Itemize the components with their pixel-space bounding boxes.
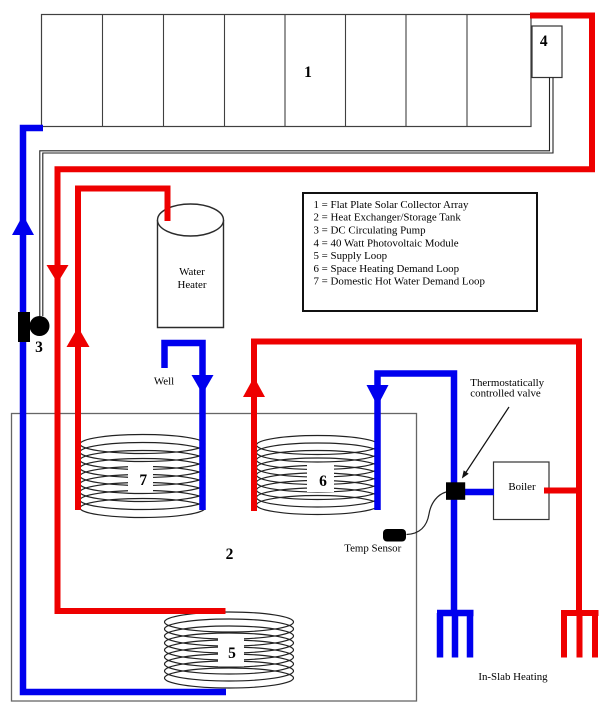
svg-text:7: 7 <box>139 472 147 489</box>
svg-text:3 = DC Circulating Pump: 3 = DC Circulating Pump <box>314 225 427 237</box>
svg-text:3: 3 <box>35 339 43 356</box>
svg-text:Water: Water <box>179 266 205 278</box>
svg-text:4: 4 <box>540 33 548 50</box>
svg-text:Well: Well <box>154 376 174 388</box>
svg-text:4 = 40 Watt Photovoltaic Modul: 4 = 40 Watt Photovoltaic Module <box>314 237 459 249</box>
svg-text:2: 2 <box>226 546 234 563</box>
svg-text:controlled valve: controlled valve <box>470 388 541 400</box>
svg-text:1 = Flat Plate Solar Collector: 1 = Flat Plate Solar Collector Array <box>314 199 470 211</box>
svg-text:6 = Space Heating Demand Loop: 6 = Space Heating Demand Loop <box>314 263 460 275</box>
svg-text:Temp Sensor: Temp Sensor <box>344 542 401 554</box>
svg-text:6: 6 <box>319 473 327 490</box>
svg-text:5 = Supply Loop: 5 = Supply Loop <box>314 250 388 262</box>
svg-text:2 = Heat Exchanger/Storage Tan: 2 = Heat Exchanger/Storage Tank <box>314 212 462 224</box>
svg-text:Boiler: Boiler <box>508 481 536 493</box>
svg-text:1: 1 <box>304 64 312 81</box>
svg-text:In-Slab Heating: In-Slab Heating <box>478 671 548 683</box>
svg-text:7 = Domestic Hot Water Demand: 7 = Domestic Hot Water Demand Loop <box>314 276 486 288</box>
svg-text:5: 5 <box>228 645 236 662</box>
svg-text:Heater: Heater <box>177 279 206 291</box>
